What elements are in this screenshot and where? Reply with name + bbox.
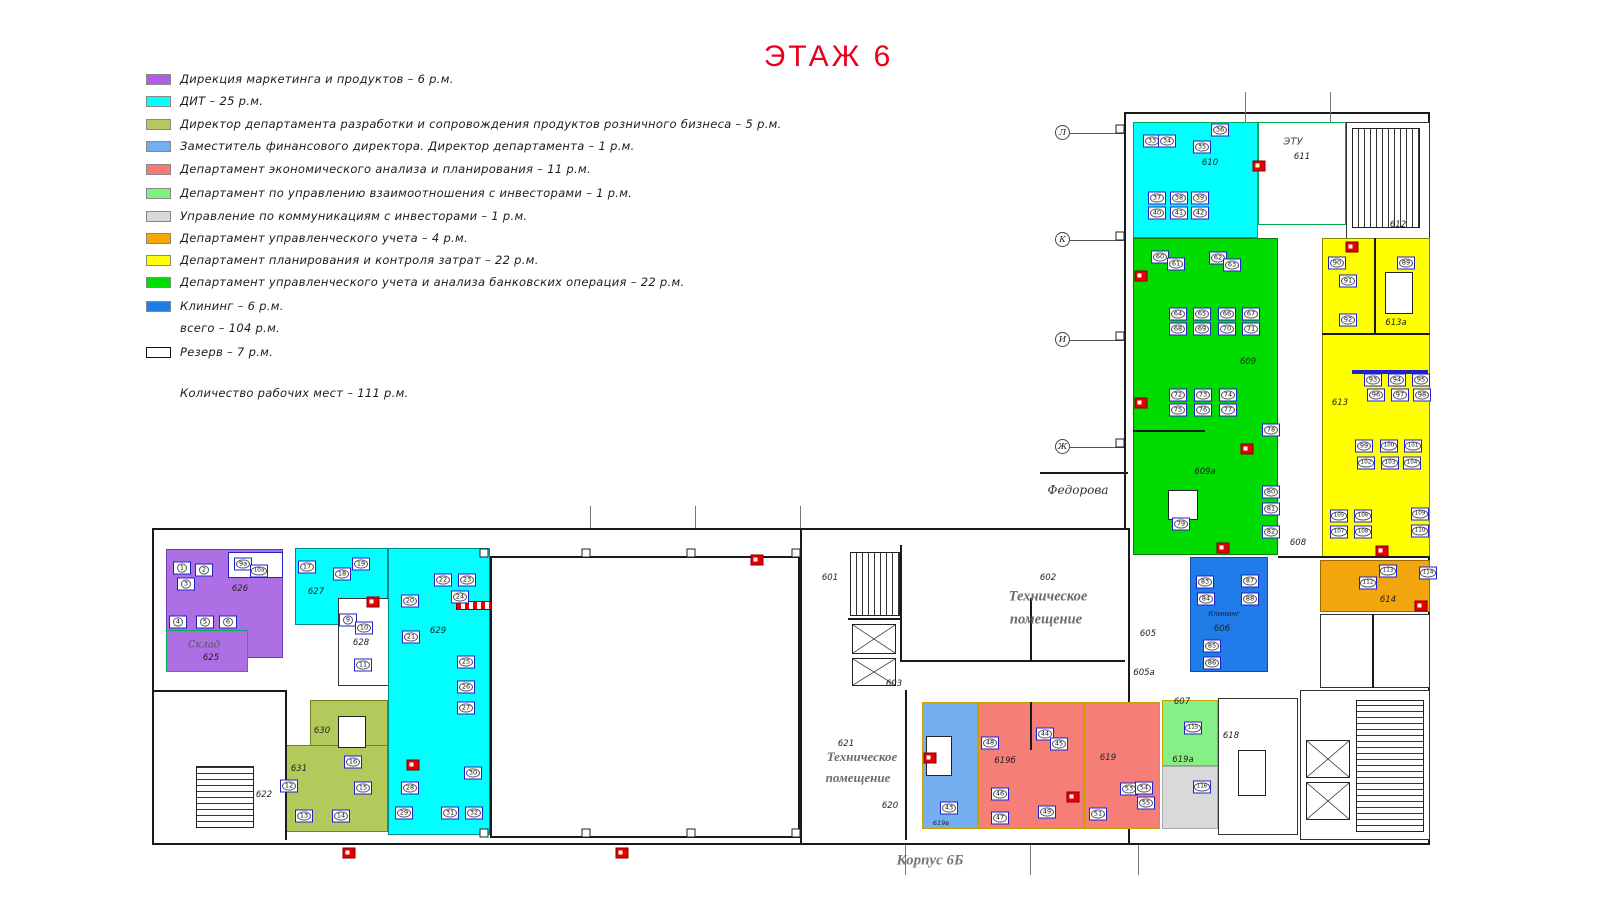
desk-marker: 112: [1359, 577, 1377, 590]
desk-marker: 61: [1167, 258, 1185, 271]
legend-label: Департамент управленческого учета и анал…: [180, 275, 684, 289]
desk-marker: 86: [1203, 657, 1221, 670]
room-label: 603: [886, 679, 902, 689]
room-label: 628: [353, 638, 369, 648]
room-label: 608: [1290, 538, 1306, 548]
desk-marker: 23: [458, 574, 476, 587]
room-label: Техническое: [827, 749, 898, 765]
room-label: 607: [1174, 697, 1190, 707]
fire-extinguisher-icon: [367, 597, 380, 608]
desk-marker: 108: [1354, 526, 1372, 539]
fire-extinguisher-icon: [751, 555, 764, 566]
legend-label: Департамент планирования и контроля затр…: [180, 253, 539, 267]
desk-marker: 94: [1388, 374, 1406, 387]
desk-marker: 66: [1218, 308, 1236, 321]
interior-wall: [1278, 556, 1430, 558]
desk-marker: 65: [1193, 308, 1211, 321]
column-node: [687, 549, 696, 558]
interior-wall: [1030, 598, 1032, 660]
column-node: [480, 549, 489, 558]
desk-marker: 76: [1194, 404, 1212, 417]
stairs-hatch: [196, 766, 254, 828]
desk-marker: 25: [457, 656, 475, 669]
column-node: [687, 829, 696, 838]
desk-marker: 48: [981, 737, 999, 750]
legend-swatch: [146, 211, 171, 222]
room-label: 602: [1040, 573, 1056, 583]
room-label: 621: [838, 739, 854, 749]
desk-marker: 101: [1404, 440, 1422, 453]
desk-marker: 77: [1219, 404, 1237, 417]
desk-marker: 103: [1381, 457, 1399, 470]
desk-marker: 114: [1419, 567, 1437, 580]
desk-marker: 113: [1379, 565, 1397, 578]
column-node: [582, 549, 591, 558]
fire-extinguisher-icon: [1135, 398, 1148, 409]
desk-marker: 104: [1403, 457, 1421, 470]
desk-marker: 10а: [250, 565, 268, 578]
stairs-hatch: [850, 552, 900, 616]
legend-label: Департамент по управлению взаимоотношени…: [180, 186, 632, 200]
desk-marker: 115: [1184, 722, 1202, 735]
room-label: 614: [1380, 595, 1396, 605]
interior-wall: [1322, 333, 1430, 335]
legend-label: Дирекция маркетинга и продуктов – 6 р.м.: [180, 72, 454, 86]
desk-marker: 2: [195, 564, 213, 577]
elevator-shaft: [1306, 782, 1350, 820]
room-625: [166, 630, 248, 672]
desk-marker: 18: [333, 568, 351, 581]
grid-stub-line: [695, 506, 696, 528]
desk-marker: 31: [441, 807, 459, 820]
desk-marker: 5: [196, 616, 214, 629]
desk-marker: 70: [1218, 323, 1236, 336]
desk-marker: 13: [295, 810, 313, 823]
legend-item: Дирекция маркетинга и продуктов – 6 р.м.: [146, 72, 454, 86]
legend-swatch: [146, 277, 171, 288]
desk-marker: 85: [1203, 640, 1221, 653]
legend-swatch: [146, 255, 171, 266]
fire-extinguisher-icon: [1067, 792, 1080, 803]
stairs-hatch: [1356, 700, 1424, 832]
legend-swatch: [146, 74, 171, 85]
room-label: 619б: [994, 756, 1015, 766]
desk-marker: 98: [1413, 389, 1431, 402]
floor-plan-page: ЭТАЖ 6 Дирекция маркетинга и продуктов –…: [0, 0, 1600, 900]
legend-swatch: [146, 233, 171, 244]
room-label: 620: [882, 801, 898, 811]
column-node: [792, 549, 801, 558]
desk-marker: 54: [1135, 782, 1153, 795]
interior-wall: [848, 618, 900, 620]
room-label: помещение: [1010, 612, 1082, 629]
desk-marker: 55: [1137, 797, 1155, 810]
desk-marker: 35: [1193, 141, 1211, 154]
legend-swatch: [146, 119, 171, 130]
desk-marker: 87: [1241, 575, 1259, 588]
room-label: 619в: [933, 819, 949, 827]
elevator-shaft: [1306, 740, 1350, 778]
desk-marker: 15: [354, 782, 372, 795]
legend-swatch: [146, 141, 171, 152]
fire-extinguisher-icon: [1241, 444, 1254, 455]
interior-wall: [1040, 472, 1128, 474]
column-node: [1116, 232, 1125, 241]
fire-extinguisher-icon: [616, 848, 629, 859]
desk-marker: 19: [352, 558, 370, 571]
desk-marker: 97: [1391, 389, 1409, 402]
meeting-table: [1168, 490, 1198, 520]
legend-item: Департамент планирования и контроля затр…: [146, 253, 539, 267]
grid-stub-line: [1030, 845, 1031, 875]
room-label: 629: [430, 626, 446, 636]
room-label: 619: [1100, 753, 1116, 763]
desk-marker: 81: [1262, 503, 1280, 516]
desk-marker: 88: [1241, 593, 1259, 606]
desk-marker: 34: [1158, 135, 1176, 148]
room-label: 606: [1214, 624, 1230, 634]
fire-extinguisher-icon: [1253, 161, 1266, 172]
column-node: [1116, 439, 1125, 448]
desk-marker: 105: [1330, 510, 1348, 523]
desk-marker: 42: [1191, 207, 1209, 220]
desk-marker: 51: [1089, 808, 1107, 821]
fire-extinguisher-icon: [1217, 543, 1230, 554]
room-label: Корпус 6Б: [896, 853, 963, 870]
desk-marker: 74: [1219, 389, 1237, 402]
room-label: 611: [1294, 152, 1310, 162]
legend-reserve: Резерв – 7 р.м.: [146, 345, 273, 359]
room-label: 610: [1202, 158, 1218, 168]
desk-marker: 43: [940, 802, 958, 815]
legend-item: Управление по коммуникациям с инвесторам…: [146, 209, 527, 223]
desk-marker: 109: [1411, 508, 1429, 521]
desk-marker: 38: [1170, 192, 1188, 205]
meeting-table: [1385, 272, 1413, 314]
desk-marker: 84: [1197, 593, 1215, 606]
legend: Дирекция маркетинга и продуктов – 6 р.м.…: [146, 72, 866, 412]
desk-marker: 6: [219, 616, 237, 629]
desk-marker: 92: [1339, 314, 1357, 327]
interior-wall: [905, 690, 907, 840]
legend-label: Клининг – 6 р.м.: [180, 299, 284, 313]
grid-stub-line: [590, 506, 591, 528]
room-label: 613а: [1385, 318, 1406, 328]
grid-stub-line: [800, 506, 801, 528]
desk-marker: 90: [1328, 257, 1346, 270]
legend-label: Департамент экономического анализа и пла…: [180, 162, 591, 176]
room-619gray: [1162, 766, 1218, 829]
room-label: 609а: [1194, 467, 1215, 477]
desk-marker: 29: [395, 807, 413, 820]
fire-extinguisher-icon: [407, 760, 420, 771]
room-label: 618: [1223, 731, 1239, 741]
legend-label: ДИТ – 25 р.м.: [180, 94, 263, 108]
room-wc: [1320, 614, 1430, 688]
page-title: ЭТАЖ 6: [764, 40, 894, 74]
room-label: 627: [308, 587, 324, 597]
interior-wall: [285, 690, 287, 840]
fire-extinguisher-icon: [1415, 601, 1428, 612]
grid-stub-line: [1245, 92, 1246, 122]
desk-marker: 27: [457, 702, 475, 715]
fire-extinguisher-icon: [1346, 242, 1359, 253]
legend-workplaces-label: Количество рабочих мест – 111 р.м.: [180, 386, 409, 400]
grid-row-marker: К: [1055, 232, 1070, 247]
legend-swatch: [146, 164, 171, 175]
room-label: 613: [1332, 398, 1348, 408]
interior-wall: [1374, 238, 1376, 333]
room-label: 622: [256, 790, 272, 800]
room-label: Клининг: [1208, 610, 1239, 618]
room-label: 612: [1390, 220, 1406, 230]
desk-marker: 107: [1330, 526, 1348, 539]
legend-label: Департамент управленческого учета – 4 р.…: [180, 231, 468, 245]
interior-wall: [900, 545, 902, 660]
room-label: 601: [822, 573, 838, 583]
column-node: [1116, 332, 1125, 341]
legend-item: Департамент по управлению взаимоотношени…: [146, 186, 632, 200]
fire-extinguisher-icon: [1376, 546, 1389, 557]
desk-marker: 68: [1169, 323, 1187, 336]
legend-swatch: [146, 96, 171, 107]
desk-marker: 26: [457, 681, 475, 694]
legend-item: Департамент экономического анализа и пла…: [146, 162, 591, 176]
desk-marker: 46: [991, 788, 1009, 801]
room-label: Техническое: [1009, 589, 1088, 606]
desk-marker: 116: [1193, 781, 1211, 794]
legend-item: ДИТ – 25 р.м.: [146, 94, 263, 108]
desk-marker: 17: [298, 561, 316, 574]
desk-marker: 30: [464, 767, 482, 780]
interior-wall: [800, 528, 802, 845]
desk-marker: 37: [1148, 192, 1166, 205]
legend-swatch: [146, 188, 171, 199]
legend-reserve-swatch: [146, 347, 171, 358]
grid-stub-line: [1330, 92, 1331, 122]
grid-stub-line: [1138, 845, 1139, 875]
legend-reserve-label: Резерв – 7 р.м.: [180, 345, 273, 359]
meeting-table: [1238, 750, 1266, 796]
desk-marker: 10: [355, 622, 373, 635]
building-wall: [490, 556, 800, 838]
fire-extinguisher-icon: [1135, 271, 1148, 282]
desk-marker: 102: [1357, 457, 1375, 470]
desk-marker: 40: [1148, 207, 1166, 220]
interior-wall: [1133, 430, 1205, 432]
desk-marker: 89: [1397, 257, 1415, 270]
legend-label: Директор департамента разработки и сопро…: [180, 117, 782, 131]
desk-marker: 63: [1223, 259, 1241, 272]
desk-marker: 49: [1038, 806, 1056, 819]
desk-marker: 24: [451, 591, 469, 604]
column-node: [1116, 125, 1125, 134]
desk-marker: 75: [1169, 404, 1187, 417]
desk-marker: 45: [1050, 738, 1068, 751]
desk-marker: 73: [1194, 389, 1212, 402]
stairs-hatch: [1352, 128, 1420, 228]
desk-marker: 106: [1354, 510, 1372, 523]
fire-extinguisher-icon: [924, 753, 937, 764]
desk-marker: 1: [173, 562, 191, 575]
desk-marker: 22: [434, 574, 452, 587]
desk-marker: 3: [177, 578, 195, 591]
grid-row-marker: И: [1055, 332, 1070, 347]
interior-wall: [1372, 614, 1374, 688]
room-label: 619а: [1172, 755, 1193, 765]
legend-item: Клининг – 6 р.м.: [146, 299, 284, 313]
desk-marker: 14: [332, 810, 350, 823]
desk-marker: 64: [1169, 308, 1187, 321]
desk-marker: 28: [401, 782, 419, 795]
legend-item: Департамент управленческого учета – 4 р.…: [146, 231, 468, 245]
column-node: [792, 829, 801, 838]
interior-wall: [1030, 702, 1032, 750]
desk-marker: 96: [1367, 389, 1385, 402]
room-label: помещение: [826, 770, 891, 786]
room-label: Федорова: [1048, 483, 1109, 497]
desk-marker: 91: [1339, 275, 1357, 288]
elevator-shaft: [852, 624, 896, 654]
desk-marker: 83: [1196, 576, 1214, 589]
interior-wall: [900, 660, 1125, 662]
desk-marker: 12: [280, 780, 298, 793]
desk-marker: 41: [1170, 207, 1188, 220]
desk-marker: 32: [465, 807, 483, 820]
column-node: [480, 829, 489, 838]
meeting-table: [338, 716, 366, 748]
desk-marker: 82: [1262, 526, 1280, 539]
desk-marker: 78: [1262, 424, 1280, 437]
room-label: 609: [1240, 357, 1256, 367]
desk-marker: 16: [344, 756, 362, 769]
desk-marker: 100: [1380, 440, 1398, 453]
interior-wall: [152, 690, 285, 692]
legend-swatch: [146, 301, 171, 312]
desk-marker: 4: [169, 616, 187, 629]
desk-marker: 69: [1193, 323, 1211, 336]
legend-label: Управление по коммуникациям с инвесторам…: [180, 209, 527, 223]
desk-marker: 95: [1412, 374, 1430, 387]
fire-extinguisher-icon: [343, 848, 356, 859]
grid-row-marker: Ж: [1055, 439, 1070, 454]
room-label: 605: [1140, 629, 1156, 639]
room-label: 625: [203, 653, 219, 663]
room-label: Склад: [188, 640, 220, 651]
desk-marker: 72: [1169, 389, 1187, 402]
desk-marker: 36: [1211, 124, 1229, 137]
room-label: 605а: [1133, 668, 1154, 678]
desk-marker: 79: [1172, 518, 1190, 531]
desk-marker: 20: [401, 595, 419, 608]
legend-item: Заместитель финансового директора. Дирек…: [146, 139, 635, 153]
legend-item: Департамент управленческого учета и анал…: [146, 275, 684, 289]
column-node: [582, 829, 591, 838]
room-label: 626: [232, 584, 248, 594]
desk-marker: 99: [1355, 440, 1373, 453]
legend-total-label: всего – 104 р.м.: [180, 321, 280, 335]
desk-marker: 110: [1411, 525, 1429, 538]
room-label: 630: [314, 726, 330, 736]
legend-item: Директор департамента разработки и сопро…: [146, 117, 782, 131]
desk-marker: 93: [1364, 374, 1382, 387]
legend-total: всего – 104 р.м.: [146, 321, 280, 335]
desk-marker: 11: [354, 659, 372, 672]
desk-marker: 67: [1242, 308, 1260, 321]
legend-label: Заместитель финансового директора. Дирек…: [180, 139, 635, 153]
room-label: 631: [291, 764, 307, 774]
desk-marker: 71: [1242, 323, 1260, 336]
legend-workplaces: Количество рабочих мест – 111 р.м.: [146, 386, 409, 400]
desk-marker: 47: [991, 812, 1009, 825]
desk-marker: 80: [1262, 486, 1280, 499]
room-label: ЭТУ: [1283, 137, 1302, 148]
desk-marker: 21: [402, 631, 420, 644]
grid-row-marker: Л: [1055, 125, 1070, 140]
desk-marker: 39: [1191, 192, 1209, 205]
